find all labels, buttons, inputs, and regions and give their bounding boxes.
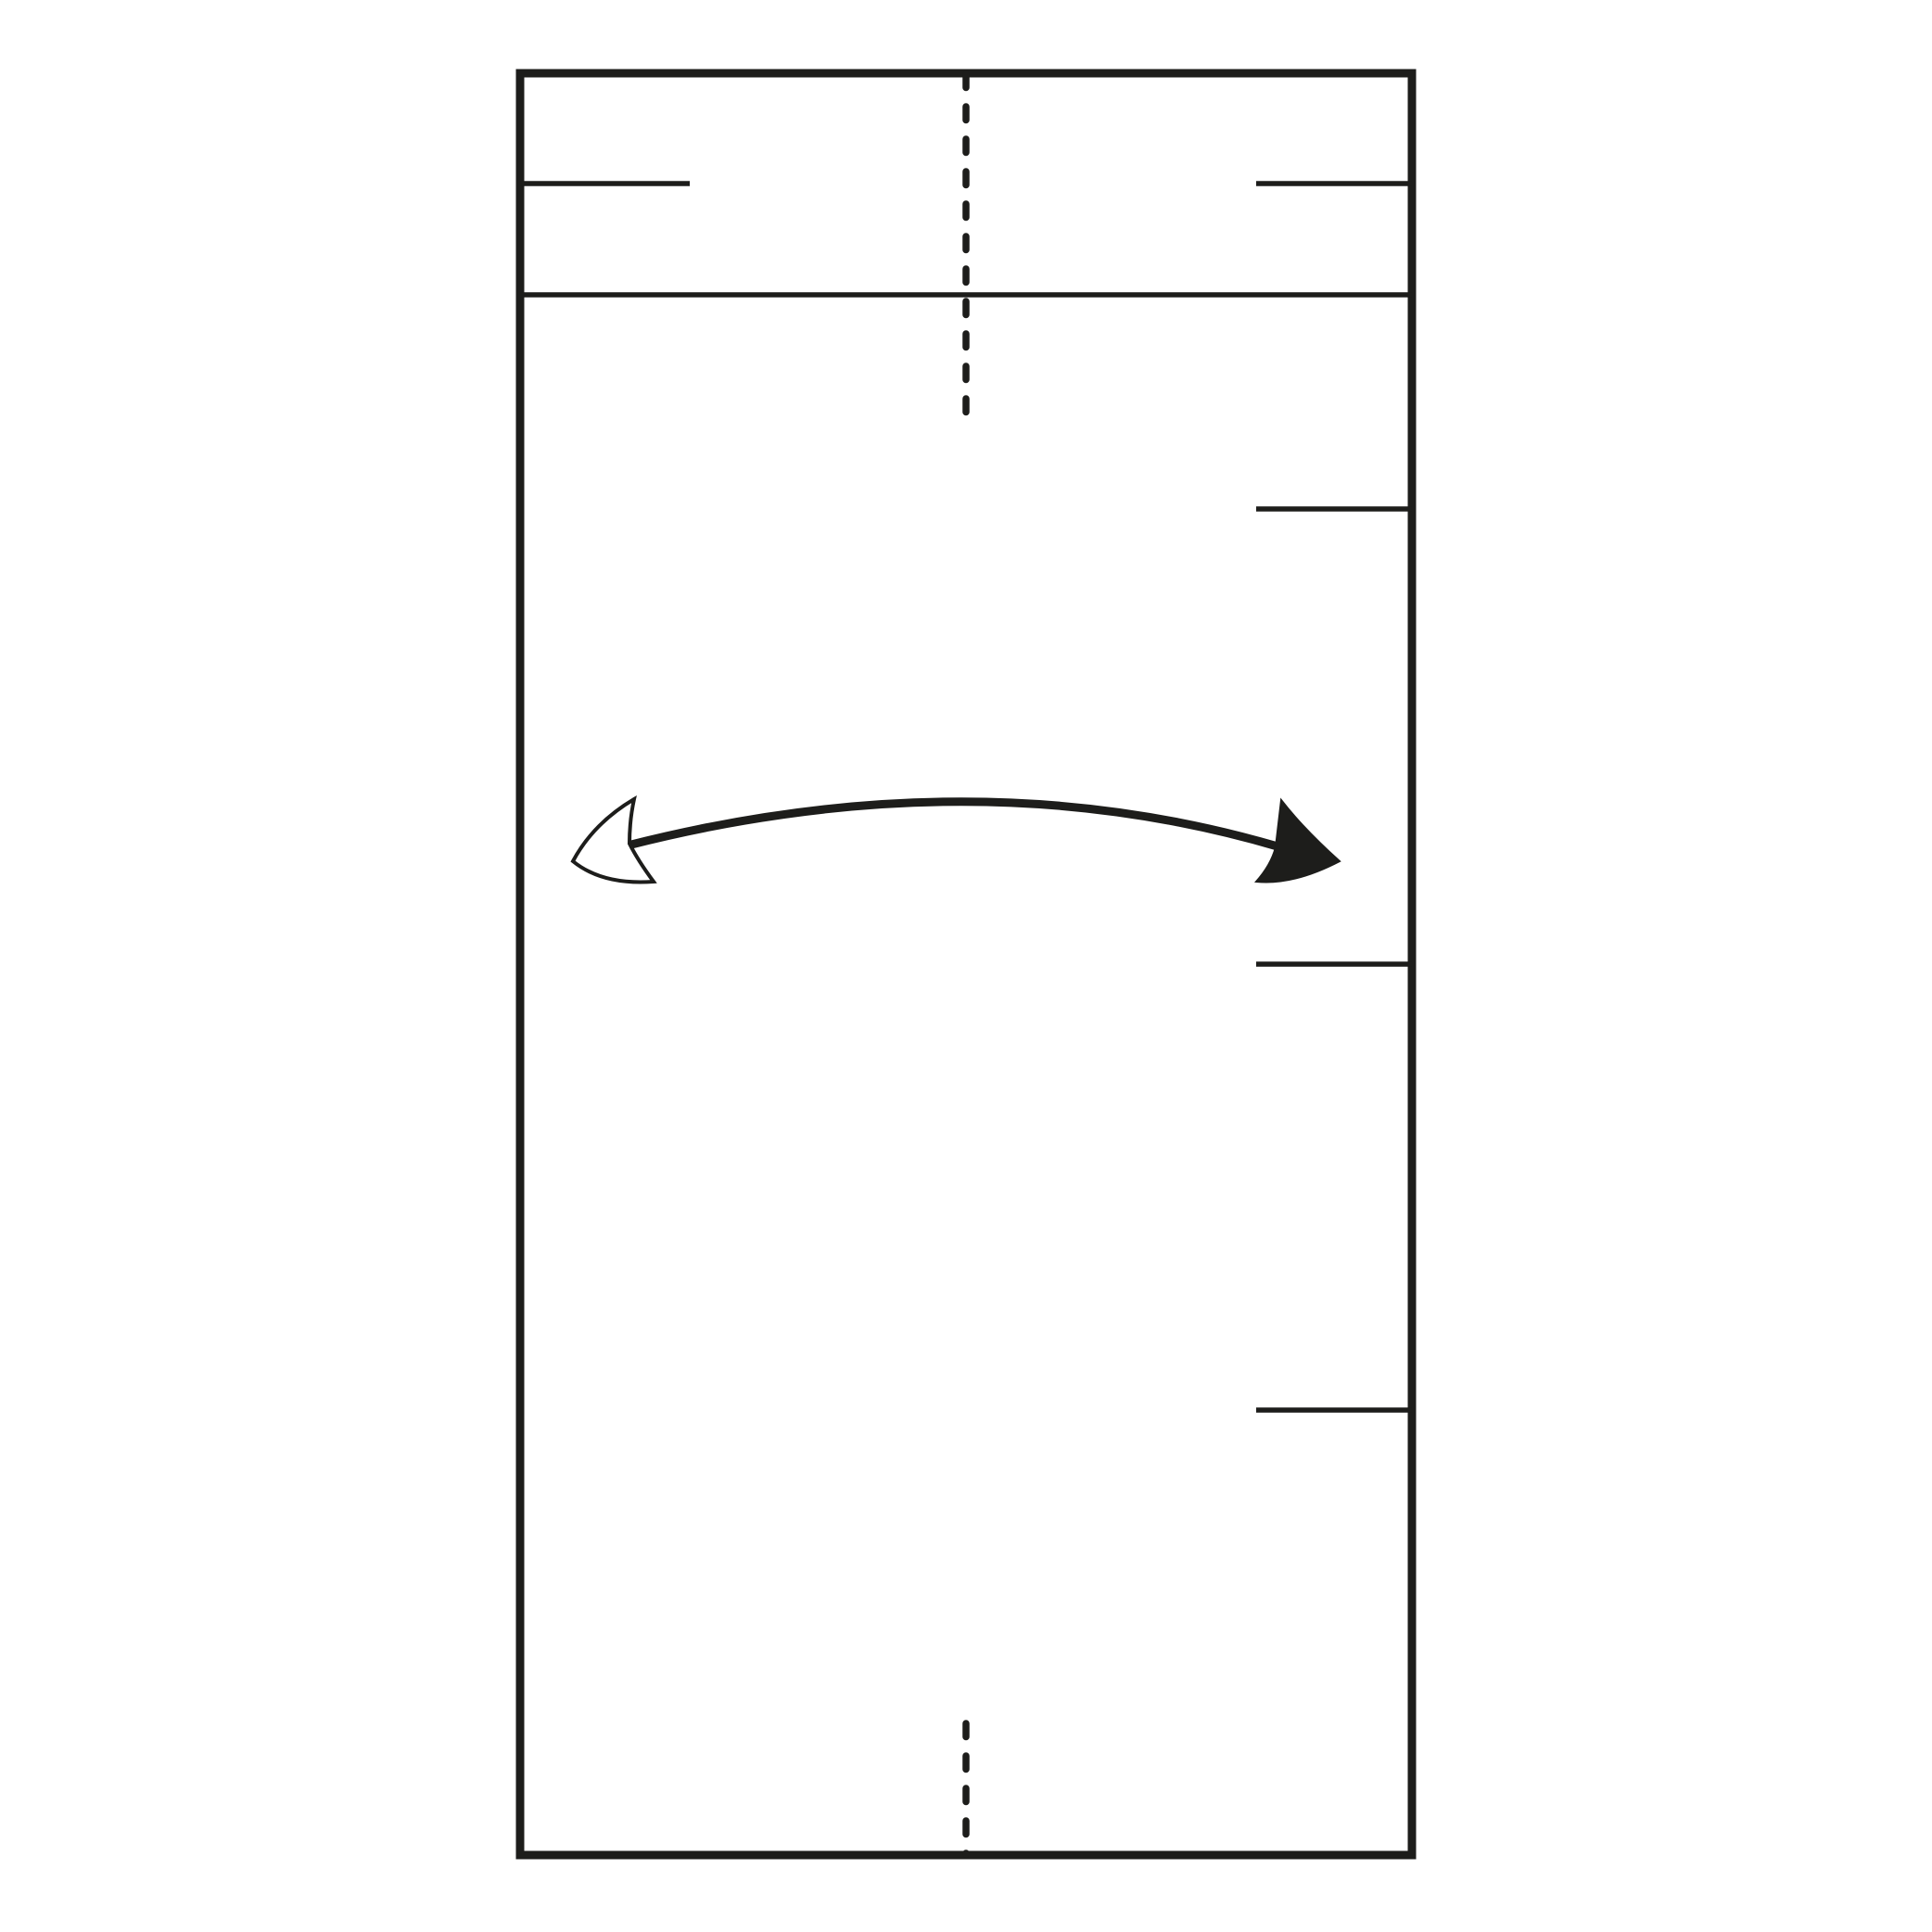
origami-step-diagram bbox=[0, 0, 1932, 1932]
diagram-page bbox=[0, 0, 1932, 1932]
fold-arrow-shaft bbox=[628, 802, 1277, 846]
